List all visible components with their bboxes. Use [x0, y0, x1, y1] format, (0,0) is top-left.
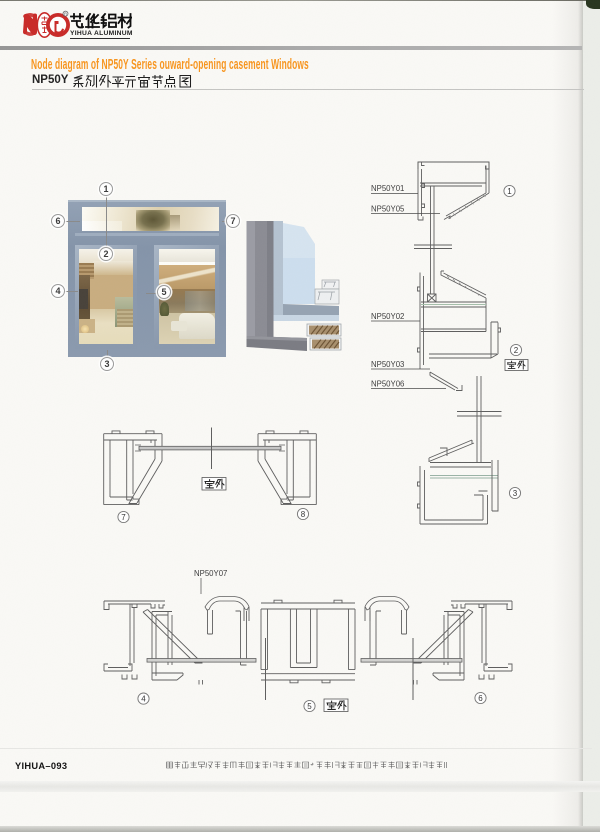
svg-text:NP50Y06: NP50Y06 [371, 380, 404, 389]
svg-text:4: 4 [141, 695, 146, 704]
svg-text:7: 7 [121, 513, 126, 522]
svg-text:3: 3 [513, 489, 518, 498]
svg-text:NP50Y05: NP50Y05 [371, 205, 405, 214]
svg-text:1: 1 [507, 187, 512, 196]
svg-text:2: 2 [514, 346, 519, 355]
svg-text:NP50Y02: NP50Y02 [371, 312, 404, 321]
svg-text:8: 8 [301, 510, 306, 519]
svg-text:6: 6 [478, 694, 483, 703]
svg-text:NP50Y01: NP50Y01 [371, 184, 404, 193]
svg-text:NP50Y03: NP50Y03 [371, 360, 404, 369]
svg-text:NP50Y07: NP50Y07 [194, 569, 227, 578]
svg-text:5: 5 [307, 702, 312, 711]
svg-text:R: R [64, 11, 67, 16]
